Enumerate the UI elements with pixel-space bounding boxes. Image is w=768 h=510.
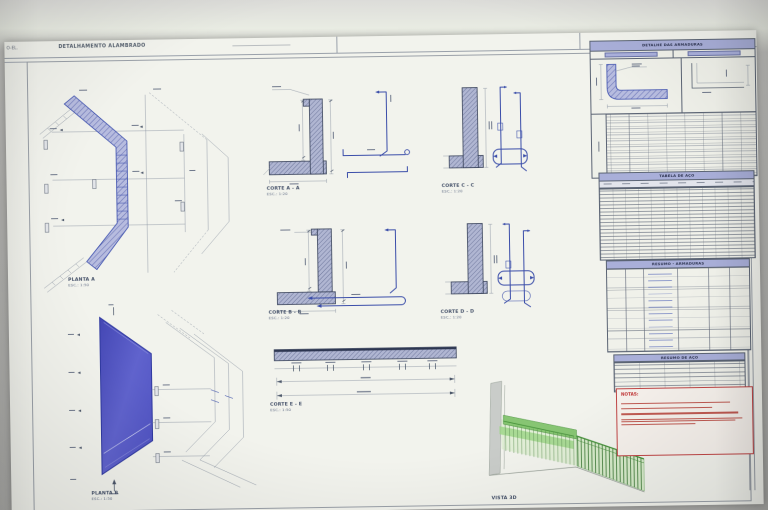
note-line xyxy=(621,402,730,405)
corte-b-drawing xyxy=(276,228,405,315)
resumo-armaduras-grid xyxy=(607,267,750,351)
rebar-sketch-column xyxy=(642,270,677,349)
drawing-sheet[interactable]: O-EL. DETALHAMENTO ALAMBRADO xyxy=(4,30,763,510)
corte-c-label: CORTE C - CESC.: 1:20 xyxy=(442,183,475,195)
corte-d-label: CORTE D - DESC.: 1:20 xyxy=(441,309,475,321)
vista-3d-label: VISTA 3D xyxy=(492,495,517,501)
tabela-aco-panel: TABELA DE AÇO xyxy=(598,170,755,260)
corte-c-drawing xyxy=(442,86,527,173)
notes-title: NOTAS: xyxy=(621,391,710,397)
corte-a-drawing xyxy=(262,84,410,185)
tabela-aco-rows xyxy=(600,186,755,259)
note-line xyxy=(621,412,738,415)
plan-a-label: PLANTA AESC.: 1:50 xyxy=(68,277,95,289)
resumo-armaduras-panel: RESUMO - ARMADURAS xyxy=(606,258,751,352)
corte-a-label: CORTE A - AESC.: 1:20 xyxy=(267,185,300,197)
notes-box: NOTAS: xyxy=(616,386,754,456)
armaduras-table xyxy=(592,111,757,178)
screen-photo: O-EL. DETALHAMENTO ALAMBRADO xyxy=(0,0,768,510)
plan-b-label: PLANTA BESC.: 1:50 xyxy=(91,490,118,502)
armadura-detail-right xyxy=(681,57,756,112)
armadura-detail-left xyxy=(591,58,682,113)
corte-e-drawing xyxy=(274,347,457,400)
corte-b-label: CORTE B - BESC.: 1:20 xyxy=(269,309,302,321)
note-line xyxy=(621,407,712,410)
note-paragraph xyxy=(621,417,748,425)
corte-e-label: CORTE E - EESC.: 1:50 xyxy=(270,401,302,413)
corte-d-drawing xyxy=(444,222,534,308)
plan-a-drawing xyxy=(39,87,230,292)
plan-b-drawing xyxy=(67,302,256,495)
armaduras-panel: DETALHE DAS ARMADURAS xyxy=(589,38,757,179)
